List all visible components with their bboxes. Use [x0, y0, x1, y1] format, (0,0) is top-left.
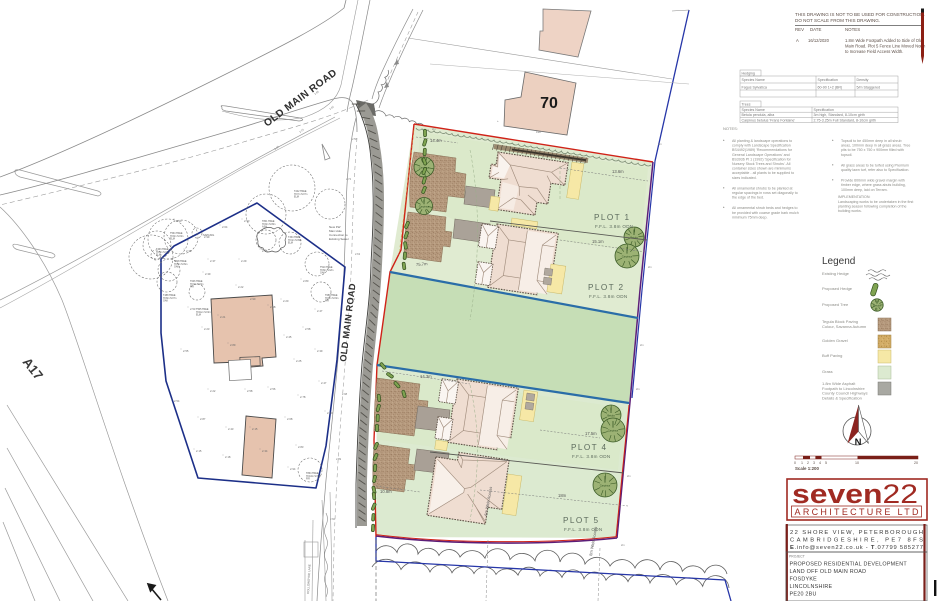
svg-text:ASH: ASH	[262, 226, 267, 229]
svg-text:FIR: FIR	[325, 300, 329, 303]
svg-text:to Increase Field Access Width: to Increase Field Access Width.	[845, 49, 903, 54]
svg-text:Species Name: Species Name	[742, 108, 765, 112]
svg-text:pits to be 750 x 750 x 900mm f: pits to be 750 x 750 x 900mm filled with	[841, 148, 904, 152]
svg-text:Colour, Savanna Autumn: Colour, Savanna Autumn	[822, 324, 866, 329]
svg-text:topsoil.: topsoil.	[841, 153, 852, 157]
svg-text:2.18: 2.18	[225, 455, 231, 459]
svg-text:FIR: FIR	[306, 478, 310, 481]
svg-text:2.34: 2.34	[262, 449, 268, 453]
svg-text:2.58: 2.58	[270, 305, 276, 309]
svg-text:Fagus Sylvatica: Fagus Sylvatica	[742, 86, 767, 90]
svg-text:CAMBRIDGESHIRE, PE7 8FS: CAMBRIDGESHIRE, PE7 8FS	[790, 538, 923, 544]
svg-text:comply with Landscape Specific: comply with Landscape Specification	[732, 144, 791, 148]
svg-text:IMPLEMENTATION:: IMPLEMENTATION:	[838, 195, 870, 199]
svg-text:Landscaping works to be undert: Landscaping works to be undertaken in th…	[838, 200, 913, 204]
svg-text:2m: 2m	[658, 142, 662, 146]
svg-text:2.89: 2.89	[336, 457, 342, 461]
svg-text:60-90 1+2 (BR): 60-90 1+2 (BR)	[818, 86, 843, 90]
svg-text:Carpinus: Carpinus	[608, 429, 619, 433]
svg-text:PLOT 4: PLOT 4	[571, 443, 607, 452]
svg-text:Details & Specification: Details & Specification	[822, 395, 862, 400]
svg-text:General Landscape Operations': General Landscape Operations' and	[732, 153, 790, 157]
svg-text:REV: REV	[795, 27, 804, 32]
svg-text:2.63: 2.63	[355, 252, 361, 256]
svg-text:Carpinus betulus 'Frans Fontai: Carpinus betulus 'Frans Fontaine'	[742, 118, 796, 122]
svg-text:Existing Hedge: Existing Hedge	[822, 271, 850, 276]
svg-text:ELM: ELM	[294, 196, 299, 199]
svg-text:Main Road. Plot 5 Fence Line M: Main Road. Plot 5 Fence Line Moved North	[845, 44, 926, 49]
svg-text:Carpinus: Carpinus	[622, 255, 633, 259]
svg-text:2.45: 2.45	[262, 249, 268, 253]
svg-text:2.78: 2.78	[300, 395, 306, 399]
svg-text:2.89: 2.89	[230, 343, 236, 347]
svg-text:2.22: 2.22	[210, 389, 216, 393]
svg-text:2.58: 2.58	[305, 327, 311, 331]
svg-text:2.54: 2.54	[174, 399, 180, 403]
svg-text:2.20: 2.20	[283, 299, 289, 303]
svg-text:Existing Sewer: Existing Sewer	[329, 237, 349, 241]
svg-text:2m: 2m	[636, 387, 640, 391]
svg-text:PLOT 2: PLOT 2	[588, 283, 624, 292]
svg-text:5: 5	[825, 461, 827, 465]
svg-text:2m: 2m	[627, 474, 631, 478]
svg-text:Provide 600mm wide gravel marg: Provide 600mm wide gravel margin with	[841, 179, 905, 183]
svg-text:N: N	[855, 437, 862, 448]
svg-text:building works.: building works.	[838, 209, 862, 213]
svg-text:Golden Gravel: Golden Gravel	[822, 338, 848, 343]
svg-text:17.5m: 17.5m	[585, 431, 597, 436]
svg-text:198: 198	[536, 130, 541, 134]
svg-text:A: A	[796, 38, 799, 43]
svg-text:quality lawn turf, refer also: quality lawn turf, refer also to Specifi…	[841, 168, 909, 172]
svg-text:LINCOLNSHIRE: LINCOLNSHIRE	[790, 584, 833, 590]
svg-text:2.47: 2.47	[317, 309, 323, 313]
svg-text:22 SHORE VIEW, PETERBOROUGH: 22 SHORE VIEW, PETERBOROUGH	[790, 530, 923, 536]
svg-text:2.39: 2.39	[205, 272, 211, 276]
svg-text:2.87: 2.87	[200, 417, 206, 421]
svg-text:areas, 100mm deep in all grass: areas, 100mm deep in all grass areas. Tr…	[841, 144, 910, 148]
svg-text:2.80: 2.80	[303, 279, 309, 283]
svg-text:2.29: 2.29	[241, 259, 247, 263]
svg-text:All ornamental shrub beds and: All ornamental shrub beds and hedges to	[732, 206, 798, 210]
svg-text:All grass areas to be turfed u: All grass areas to be turfed using Premi…	[841, 163, 909, 167]
svg-text:PROJECT: PROJECT	[789, 555, 805, 559]
svg-text:THIS DRAWING IS NOT TO BE USED: THIS DRAWING IS NOT TO BE USED FOR CONST…	[795, 12, 925, 17]
svg-text:BS3936 Pt 1 (1992) 'Specificat: BS3936 Pt 1 (1992) 'Specification for	[732, 157, 792, 161]
svg-text:70: 70	[540, 95, 558, 112]
svg-text:18m: 18m	[558, 493, 567, 498]
svg-text:16/12/2020: 16/12/2020	[808, 38, 830, 43]
svg-text:Trees: Trees	[742, 103, 751, 107]
svg-text:2.64: 2.64	[222, 225, 228, 229]
svg-text:2.37: 2.37	[210, 259, 216, 263]
svg-text:PLOT 1: PLOT 1	[594, 213, 630, 222]
svg-text:2.53: 2.53	[244, 219, 250, 223]
svg-text:2m: 2m	[640, 343, 644, 347]
svg-text:75.7m: 75.7m	[416, 261, 428, 267]
svg-text:planting season following comp: planting season following completion of …	[838, 205, 907, 209]
svg-text:Betula: Betula	[873, 304, 881, 308]
svg-text:Carpinus: Carpinus	[600, 484, 611, 488]
svg-text:2.58: 2.58	[247, 389, 253, 393]
svg-text:All planting & landscape opera: All planting & landscape operations to	[732, 139, 792, 143]
svg-text:ELM: ELM	[170, 238, 175, 241]
svg-text:FOSDYKE: FOSDYKE	[790, 577, 818, 583]
svg-text:1: 1	[801, 461, 803, 465]
svg-text:DO NOT SCALE FROM THIS DRAWING: DO NOT SCALE FROM THIS DRAWING.	[795, 18, 880, 23]
svg-text:Hedging: Hedging	[742, 72, 755, 76]
svg-text:timber edge, where grass abuts: timber edge, where grass abuts building,	[841, 183, 906, 187]
svg-text:4: 4	[819, 461, 821, 465]
svg-text:2.43: 2.43	[228, 427, 234, 431]
svg-text:Buff Paving: Buff Paving	[822, 353, 842, 358]
svg-text:2.94: 2.94	[290, 467, 296, 471]
svg-text:LAND OFF OLD MAIN ROAD: LAND OFF OLD MAIN ROAD	[790, 569, 867, 575]
svg-text:container sizes shown are mini: container sizes shown are minimums	[732, 167, 791, 171]
svg-text:2.39: 2.39	[317, 349, 323, 353]
svg-text:Nursery Stock Trees and Shrubs: Nursery Stock Trees and Shrubs'. All	[732, 162, 791, 166]
svg-text:2.56: 2.56	[270, 387, 276, 391]
svg-text:sizes indicated.: sizes indicated.	[732, 176, 757, 180]
svg-text:E.info@seven22.co.uk - T.0: E.info@seven22.co.uk - T.07799 585277	[790, 545, 923, 551]
svg-text:FIR: FIR	[190, 286, 194, 289]
svg-text:2.55: 2.55	[183, 349, 189, 353]
svg-text:2.75-3.25m Full Standard, 8-10: 2.75-3.25m Full Standard, 8-10cm girth	[814, 118, 877, 122]
svg-text:OAK: OAK	[320, 272, 325, 275]
svg-text:2.68: 2.68	[287, 417, 293, 421]
svg-text:2m: 2m	[432, 127, 436, 131]
svg-text:1.8m Wide Footpath Added to Si: 1.8m Wide Footpath Added to Side of Old	[845, 38, 923, 43]
svg-text:regular spacings in rows set d: regular spacings in rows set diagonally …	[732, 191, 798, 195]
svg-text:Betula pendula, alba: Betula pendula, alba	[742, 113, 775, 117]
svg-text:2m: 2m	[648, 265, 652, 269]
svg-text:PLOT 5: PLOT 5	[563, 516, 599, 525]
svg-text:2.53: 2.53	[190, 307, 196, 311]
svg-text:2.90: 2.90	[250, 297, 256, 301]
svg-text:Betula: Betula	[607, 414, 615, 418]
svg-text:ELM: ELM	[196, 314, 201, 317]
svg-text:Grass: Grass	[822, 369, 833, 374]
svg-text:3m high, Standard, 8-10cm girt: 3m high, Standard, 8-10cm girth	[814, 113, 865, 117]
svg-text:F.F.L. 3.8m ODN: F.F.L. 3.8m ODN	[595, 224, 633, 229]
svg-text:Specification: Specification	[814, 108, 834, 112]
svg-text:Legend: Legend	[822, 256, 855, 267]
svg-text:10.8m: 10.8m	[380, 489, 392, 494]
svg-text:2.23: 2.23	[204, 327, 210, 331]
svg-text:13.6m: 13.6m	[612, 169, 624, 174]
svg-text:ELM: ELM	[288, 242, 293, 245]
svg-text:2: 2	[807, 461, 809, 465]
svg-text:2m: 2m	[621, 543, 625, 547]
svg-text:5/m Staggered: 5/m Staggered	[857, 86, 881, 90]
svg-text:All ornamental shrubs to be pl: All ornamental shrubs to be planted at	[732, 186, 793, 190]
svg-text:BS4492(1989) 'Recommendations: BS4492(1989) 'Recommendations for	[732, 148, 793, 152]
svg-text:NOTES: NOTES	[845, 27, 860, 32]
svg-text:100mm deep, laid on Terram.: 100mm deep, laid on Terram.	[841, 188, 888, 192]
svg-text:Density: Density	[857, 78, 869, 82]
svg-text:Proposed Hedge: Proposed Hedge	[822, 286, 853, 291]
svg-text:2.21: 2.21	[220, 315, 226, 319]
svg-text:acceptable - all plants to be: acceptable - all plants to be supplied t…	[732, 171, 794, 175]
svg-text:Carpinus: Carpinus	[419, 205, 430, 209]
svg-text:2.15: 2.15	[252, 427, 258, 431]
svg-text:SAPLING: SAPLING	[203, 233, 214, 237]
svg-text:DATE: DATE	[810, 27, 821, 32]
svg-text:2.25: 2.25	[296, 359, 302, 363]
svg-text:0: 0	[794, 461, 796, 465]
svg-text:20: 20	[914, 461, 918, 465]
svg-text:2.47: 2.47	[321, 381, 327, 385]
svg-text:the edge of the bed.: the edge of the bed.	[732, 196, 764, 200]
svg-text:2.83: 2.83	[298, 445, 304, 449]
svg-text:3: 3	[813, 461, 815, 465]
svg-text:Proposed Tree: Proposed Tree	[822, 302, 849, 307]
svg-text:2.30: 2.30	[186, 249, 192, 253]
svg-text:Scale 1:200: Scale 1:200	[795, 466, 819, 471]
svg-text:OAK: OAK	[163, 300, 168, 303]
svg-text:15.1m: 15.1m	[592, 239, 604, 244]
svg-text:F.F.L. 3.8m ODN: F.F.L. 3.8m ODN	[572, 454, 610, 459]
svg-text:seven22: seven22	[792, 479, 918, 509]
svg-text:10: 10	[855, 461, 859, 465]
svg-text:2.10: 2.10	[176, 219, 182, 223]
svg-text:Species Name: Species Name	[742, 78, 765, 82]
svg-text:Topsoil to be 450mm deep in al: Topsoil to be 450mm deep in all shrub	[841, 139, 902, 143]
svg-text:Specification: Specification	[818, 78, 838, 82]
svg-text:PE20 2BU: PE20 2BU	[790, 592, 817, 598]
svg-text:be provided with coarse grade: be provided with coarse grade bark mulch	[732, 211, 799, 215]
svg-text:ELM: ELM	[156, 254, 161, 257]
svg-text:2.45: 2.45	[286, 335, 292, 339]
svg-text:F.F.L. 3.8m ODN: F.F.L. 3.8m ODN	[589, 294, 627, 299]
svg-text:14.3m: 14.3m	[420, 374, 432, 379]
svg-text:2.20: 2.20	[327, 411, 333, 415]
svg-text:+: +	[497, 119, 499, 123]
svg-text:2.72: 2.72	[346, 177, 352, 181]
svg-text:minimum 75mm deep.: minimum 75mm deep.	[732, 215, 768, 219]
svg-text:PROPOSED RESIDENTIAL DEVELOPME: PROPOSED RESIDENTIAL DEVELOPMENT	[790, 562, 908, 568]
svg-text:2.22: 2.22	[238, 285, 244, 289]
svg-text:2.15: 2.15	[196, 449, 202, 453]
svg-text:OAK: OAK	[174, 266, 179, 269]
svg-text:NOTES:: NOTES:	[723, 126, 738, 131]
